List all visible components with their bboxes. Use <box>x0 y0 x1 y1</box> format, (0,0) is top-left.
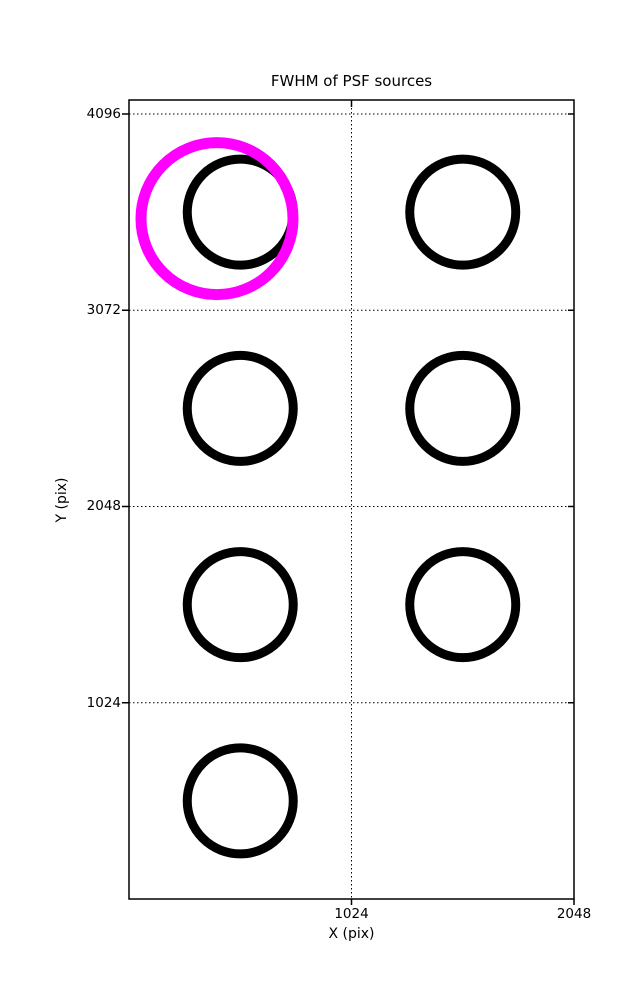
y-tick-label: 2048 <box>87 498 121 514</box>
figure: FWHM of PSF sources Y (pix) X (pix) 1024… <box>0 0 637 1000</box>
y-tick-label: 4096 <box>87 106 121 122</box>
y-tick-label: 3072 <box>87 302 121 318</box>
x-tick-label: 1024 <box>334 906 368 922</box>
psf-source-marker <box>410 159 516 265</box>
psf-source-marker <box>187 355 293 461</box>
psf-source-marker <box>187 748 293 854</box>
x-tick-label: 2048 <box>557 906 591 922</box>
psf-source-marker <box>410 355 516 461</box>
psf-source-marker <box>187 552 293 658</box>
y-tick-label: 1024 <box>87 695 121 711</box>
psf-source-marker <box>410 552 516 658</box>
